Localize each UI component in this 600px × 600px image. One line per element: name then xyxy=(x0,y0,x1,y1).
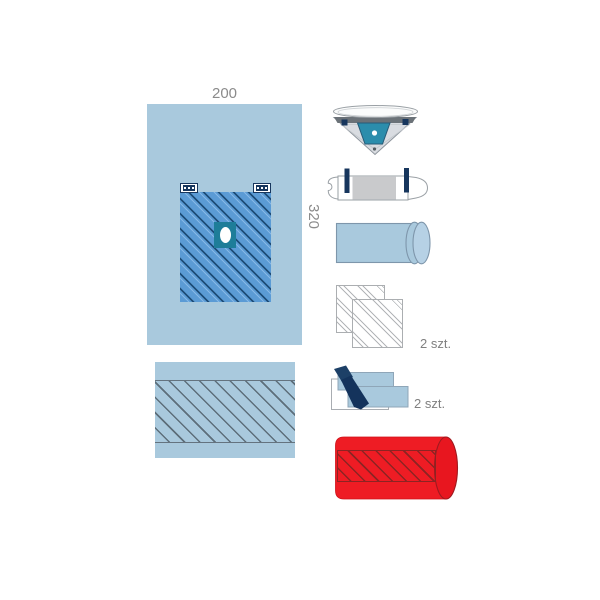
drape-height-label: 320 xyxy=(304,204,322,229)
bottom-towel-hatch-band xyxy=(155,380,295,443)
drape-roll-icon xyxy=(330,218,435,268)
gauze-square-icon xyxy=(352,299,403,348)
drape-width-label: 200 xyxy=(147,85,302,103)
equipment-cover-icon xyxy=(322,162,434,208)
red-roll-hatch-band xyxy=(337,450,436,482)
adhesive-tab-right-icon xyxy=(253,183,271,193)
adhesive-towels-icon xyxy=(325,358,420,415)
gauze-qty-label: 2 szt. xyxy=(420,337,451,351)
fenestration-hole xyxy=(220,227,231,243)
adhesive-tab-left-icon xyxy=(180,183,198,193)
drape-kit-diagram: 200 320 xyxy=(0,0,600,600)
tab-bar xyxy=(183,185,195,191)
fenestration-patch xyxy=(214,222,236,248)
tab-bar xyxy=(256,185,268,191)
towels-qty-label: 2 szt. xyxy=(414,397,445,411)
triangular-drape-icon xyxy=(325,95,425,160)
